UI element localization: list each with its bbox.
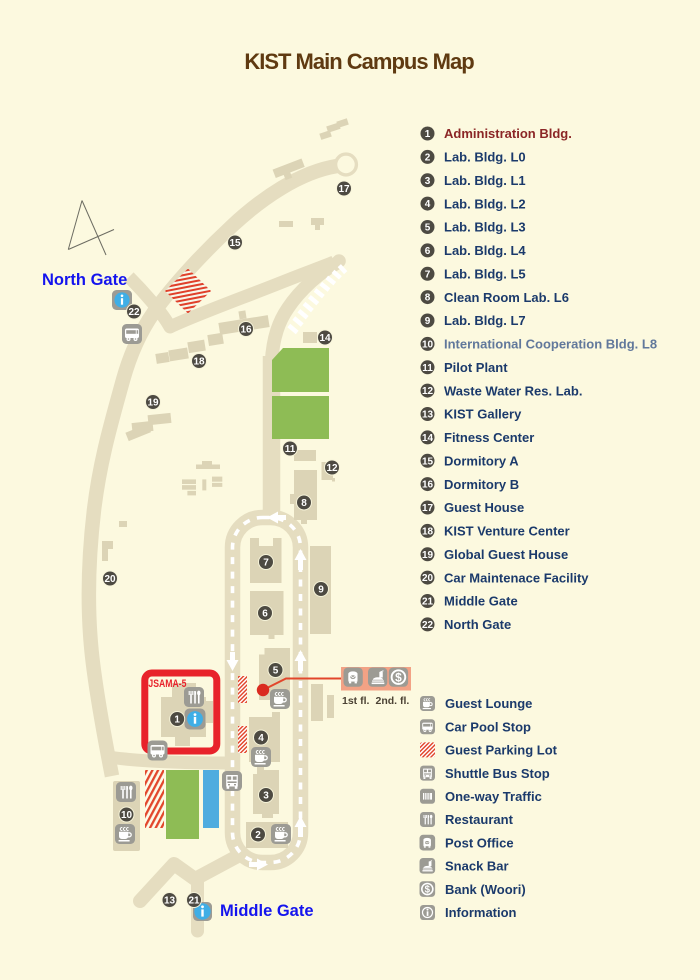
svg-text:Bank (Woori): Bank (Woori) [445,882,526,897]
svg-text:19: 19 [147,398,159,409]
svg-text:2: 2 [255,830,261,841]
svg-text:6: 6 [425,246,431,257]
svg-text:1st fl.: 1st fl. [342,695,370,707]
svg-text:16: 16 [422,480,434,491]
svg-text:6: 6 [262,609,268,620]
svg-text:JSAMA-5: JSAMA-5 [148,678,186,690]
svg-text:Lab. Bldg. L1: Lab. Bldg. L1 [444,173,526,188]
svg-text:Middle Gate: Middle Gate [444,594,518,609]
svg-text:12: 12 [326,463,338,474]
svg-text:Post Office: Post Office [445,835,514,850]
svg-text:2nd. fl.: 2nd. fl. [376,695,410,707]
svg-text:1: 1 [174,715,180,726]
svg-text:9: 9 [318,585,324,596]
svg-text:15: 15 [422,456,434,467]
svg-text:Snack Bar: Snack Bar [445,859,509,874]
svg-text:North Gate: North Gate [444,617,511,632]
svg-text:21: 21 [422,597,434,608]
svg-text:Administration Bldg.: Administration Bldg. [444,126,572,141]
svg-text:Dormitory B: Dormitory B [444,477,519,492]
svg-text:5: 5 [273,666,279,677]
svg-text:Car Maintenace Facility: Car Maintenace Facility [444,570,589,585]
svg-text:14: 14 [422,433,434,444]
svg-text:Lab. Bldg. L2: Lab. Bldg. L2 [444,196,526,211]
svg-text:Guest Parking Lot: Guest Parking Lot [445,743,558,758]
svg-text:Fitness Center: Fitness Center [444,430,534,445]
svg-text:Lab. Bldg. L7: Lab. Bldg. L7 [444,313,526,328]
svg-text:22: 22 [422,620,434,631]
svg-text:2: 2 [425,152,431,163]
svg-text:5: 5 [425,223,431,234]
svg-text:17: 17 [422,503,434,514]
svg-text:Shuttle Bus Stop: Shuttle Bus Stop [445,766,550,781]
svg-text:Lab. Bldg. L5: Lab. Bldg. L5 [444,267,526,282]
svg-text:Information: Information [445,905,517,920]
svg-text:18: 18 [193,357,205,368]
svg-text:Car Pool Stop: Car Pool Stop [445,719,531,734]
svg-text:19: 19 [422,550,434,561]
svg-text:Global Guest House: Global Guest House [444,547,568,562]
svg-text:16: 16 [240,325,252,336]
svg-text:Dormitory A: Dormitory A [444,454,519,469]
svg-text:7: 7 [425,269,431,280]
svg-text:22: 22 [128,307,140,318]
svg-text:18: 18 [422,526,434,537]
svg-text:Clean Room Lab. L6: Clean Room Lab. L6 [444,290,569,305]
svg-text:8: 8 [425,293,431,304]
svg-text:Lab. Bldg. L3: Lab. Bldg. L3 [444,220,526,235]
svg-text:7: 7 [263,558,269,569]
svg-text:13: 13 [164,896,176,907]
svg-text:20: 20 [422,573,434,584]
svg-text:8: 8 [301,498,307,509]
svg-text:17: 17 [338,184,350,195]
svg-text:3: 3 [425,176,431,187]
svg-text:11: 11 [285,444,296,455]
svg-text:KIST Gallery: KIST Gallery [444,407,522,422]
svg-text:Guest House: Guest House [444,500,524,515]
svg-text:Pilot Plant: Pilot Plant [444,360,508,375]
svg-text:Restaurant: Restaurant [445,812,514,827]
svg-text:12: 12 [422,386,434,397]
svg-text:10: 10 [422,339,434,350]
svg-text:4: 4 [258,733,264,744]
svg-text:1: 1 [425,129,431,140]
svg-text:KIST Venture Center: KIST Venture Center [444,524,570,539]
svg-text:9: 9 [425,316,431,327]
svg-text:11: 11 [422,363,433,374]
svg-text:Lab. Bldg. L4: Lab. Bldg. L4 [444,243,526,258]
svg-text:15: 15 [229,238,241,249]
svg-text:4: 4 [425,199,431,210]
svg-text:Guest Lounge: Guest Lounge [445,696,532,711]
svg-text:21: 21 [188,896,200,907]
svg-text:One-way Traffic: One-way Traffic [445,789,542,804]
svg-text:Lab. Bldg. L0: Lab. Bldg. L0 [444,150,526,165]
svg-text:International Cooperation Bldg: International Cooperation Bldg. L8 [444,337,657,352]
svg-text:20: 20 [104,574,116,585]
svg-text:10: 10 [121,810,133,821]
svg-text:3: 3 [263,791,269,802]
svg-text:Waste Water Res. Lab.: Waste Water Res. Lab. [444,383,582,398]
svg-text:14: 14 [319,333,331,344]
svg-text:13: 13 [422,410,434,421]
